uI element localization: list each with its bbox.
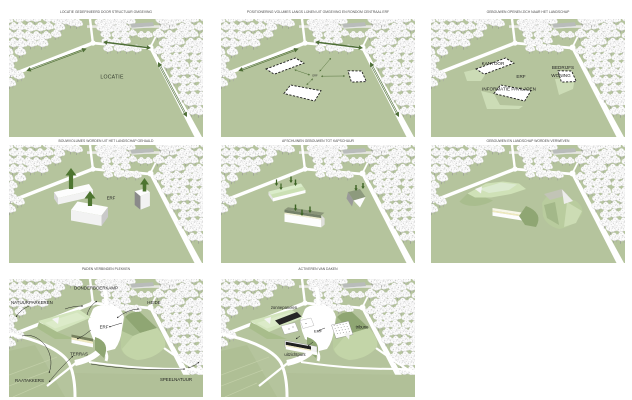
svg-text:SPEELNATUUR: SPEELNATUUR <box>160 377 192 382</box>
svg-text:KANTOOR: KANTOOR <box>482 61 505 66</box>
svg-text:HEIDE: HEIDE <box>147 300 160 305</box>
svg-text:ERF: ERF <box>312 74 318 78</box>
svg-text:ERF: ERF <box>516 74 525 79</box>
svg-text:tribune: tribune <box>356 325 369 330</box>
svg-text:DONDERBOERKAMP: DONDERBOERKAMP <box>74 286 118 291</box>
svg-text:RAATAKKERS: RAATAKKERS <box>15 378 44 383</box>
svg-text:WONING: WONING <box>551 73 571 78</box>
svg-text:INFORMATIE PAVILJOEN: INFORMATIE PAVILJOEN <box>482 87 536 92</box>
svg-text:zonnepanelen: zonnepanelen <box>271 305 298 310</box>
svg-text:NATUURPARKEREN: NATUURPARKEREN <box>11 300 53 305</box>
svg-text:uitzichtpunt: uitzichtpunt <box>284 352 306 357</box>
svg-text:ERF: ERF <box>100 325 109 330</box>
svg-text:TERRAS: TERRAS <box>70 352 88 357</box>
svg-text:ERF: ERF <box>107 196 116 201</box>
svg-text:ERF: ERF <box>314 329 323 334</box>
svg-text:BEDRIJFS: BEDRIJFS <box>552 65 574 70</box>
svg-text:LOCATIE: LOCATIE <box>100 74 124 80</box>
